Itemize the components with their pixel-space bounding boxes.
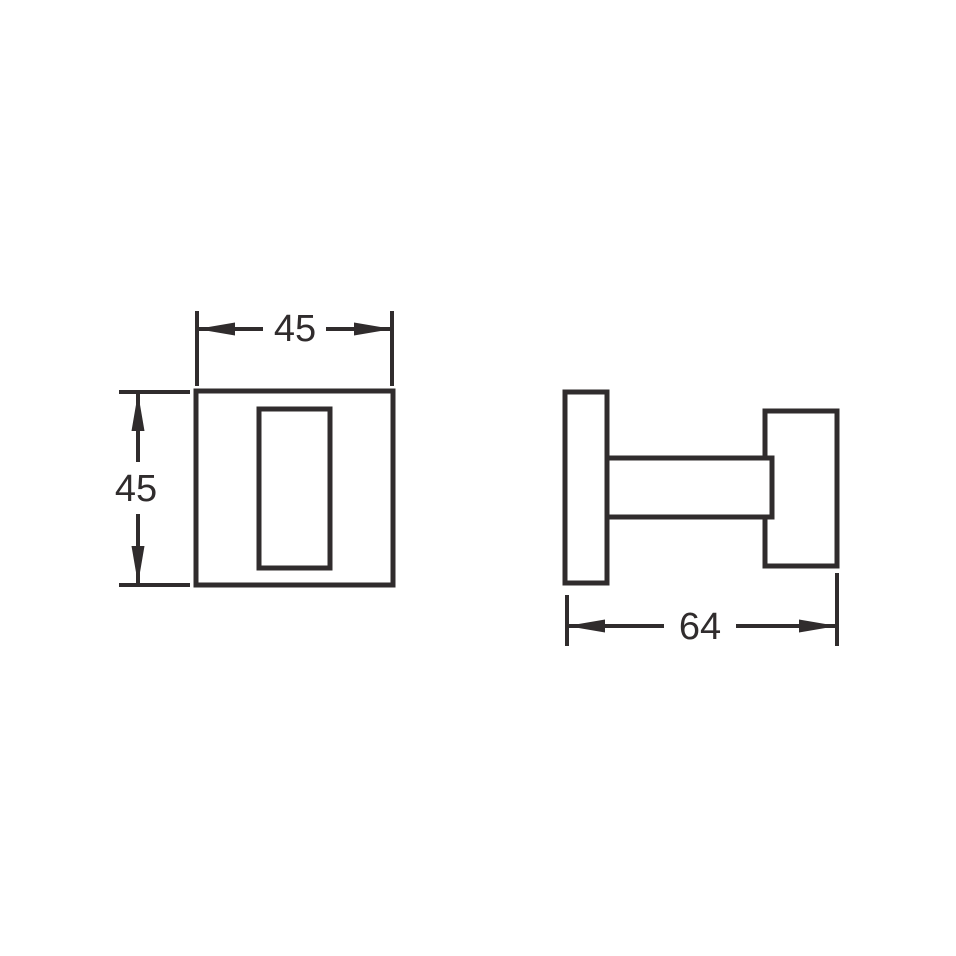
arrowhead-down: [132, 546, 145, 584]
front-width-label: 45: [274, 308, 316, 350]
arrowhead-right: [354, 323, 392, 336]
arrowhead-left: [567, 620, 605, 633]
side-view-wall-plate: [565, 392, 607, 583]
side-view: [565, 392, 837, 583]
front-height-label: 45: [115, 468, 157, 510]
arrowhead-right: [799, 620, 837, 633]
technical-drawing: 45 45 64: [0, 0, 956, 956]
front-view: [196, 391, 393, 585]
side-depth-label: 64: [679, 606, 721, 648]
front-height-dimension: 45: [115, 392, 190, 585]
side-view-hook-head: [765, 411, 837, 566]
front-width-dimension: 45: [197, 308, 392, 386]
side-view-arm: [607, 458, 772, 517]
arrowhead-up: [132, 393, 145, 431]
arrowhead-left: [197, 323, 235, 336]
front-view-inner-slot: [259, 409, 330, 568]
